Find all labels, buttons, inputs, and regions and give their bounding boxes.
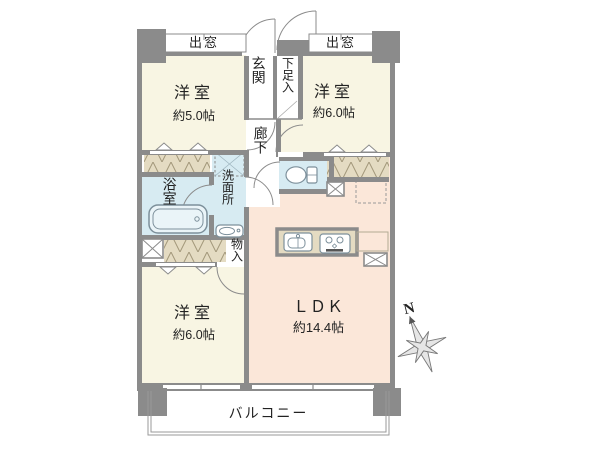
kitchen-sink-icon (284, 233, 312, 251)
floorplan: 出窓 出窓 玄関 下足入 廊下 浴室 洗面所 物入 洋室 約5.0帖 洋室 約6… (0, 0, 600, 450)
room-top-left-floor (142, 55, 246, 152)
room-top-right-name: 洋室 (277, 84, 391, 102)
toilet-icon (286, 167, 317, 183)
entrance-label: 玄関 (250, 56, 266, 84)
ldk-size: 約14.4帖 (246, 321, 391, 336)
storage-label: 物入 (229, 238, 242, 262)
washbasin-icon (216, 225, 243, 237)
balcony-label: バルコニー (148, 406, 389, 422)
floorplan-canvas (0, 0, 600, 450)
bay-window-right-label: 出窓 (309, 36, 373, 51)
room-top-right-size: 約6.0帖 (277, 106, 391, 120)
room-top-left-name: 洋室 (142, 85, 246, 103)
compass-icon (386, 307, 457, 382)
bathtub-icon (149, 205, 207, 233)
ldk-name: ＬＤＫ (246, 299, 391, 317)
room-bottom-left-name: 洋室 (142, 305, 246, 323)
room-bottom-left-size: 約6.0帖 (142, 328, 246, 342)
hatch-box-left (142, 239, 163, 258)
hatch-box-right-wall (364, 253, 387, 266)
room-bottom-left-floor (142, 265, 246, 385)
bath-label: 浴室 (161, 177, 177, 205)
washroom-label: 洗面所 (220, 169, 233, 205)
corridor-label: 廊下 (252, 126, 268, 154)
bay-window-left-label: 出窓 (162, 36, 246, 51)
room-top-left-size: 約5.0帖 (142, 109, 246, 123)
stove-icon (320, 234, 350, 253)
hatch-box-closet (327, 182, 344, 196)
